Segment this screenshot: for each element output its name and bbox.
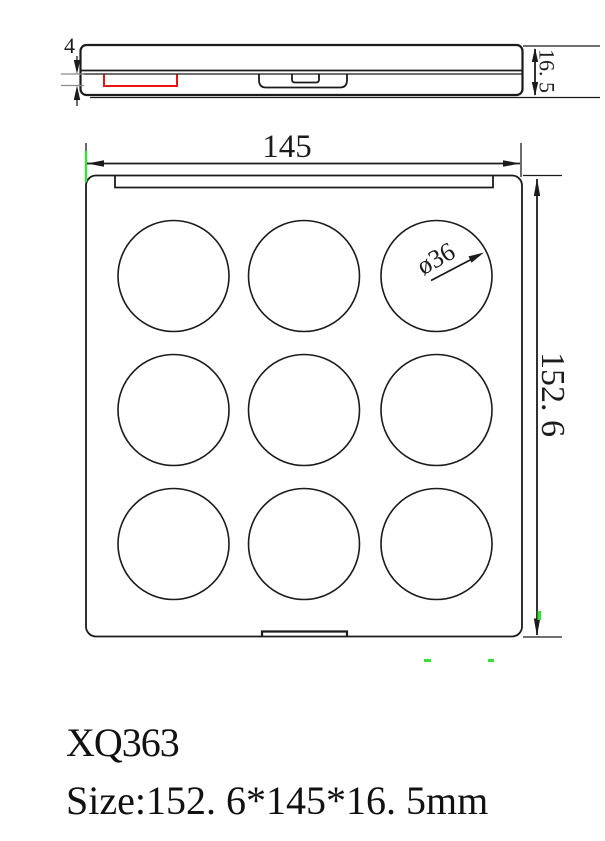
- bottom-latch-notch: [262, 632, 347, 637]
- top-view: 145 152. 6 ø36: [86, 129, 571, 662]
- hinge-strip: [115, 176, 493, 188]
- well-circle: [249, 489, 360, 600]
- arrow-up-right-icon: [469, 253, 485, 263]
- dim-text-pan-depth: 4: [64, 33, 75, 58]
- green-speck: [424, 659, 431, 662]
- palette-drawing-svg: 16. 5 4: [0, 0, 605, 841]
- latch-outline: [259, 74, 347, 88]
- well-circle: [249, 355, 360, 466]
- dim-thickness: 16. 5: [532, 48, 560, 96]
- dim-text-width: 145: [262, 129, 312, 165]
- well-circle: [118, 221, 229, 332]
- product-code-text: XQ363: [66, 720, 179, 765]
- size-spec-text: Size:152. 6*145*16. 5mm: [66, 778, 488, 823]
- pan-recess-highlight: [104, 75, 177, 87]
- well-circle: [118, 355, 229, 466]
- well-circle: [249, 221, 360, 332]
- dim-text-thickness: 16. 5: [535, 49, 560, 93]
- arrow-down-icon: [534, 619, 540, 637]
- dim-overall-width: 145: [86, 129, 521, 182]
- arrow-up-icon: [74, 86, 80, 101]
- dim-text-height: 152. 6: [534, 352, 571, 437]
- side-view: 16. 5 4: [61, 33, 600, 106]
- well-circle: [381, 355, 492, 466]
- palette-body-outline: [86, 176, 522, 637]
- well-circle: [381, 221, 492, 332]
- arrow-down-icon: [74, 60, 80, 74]
- arrow-up-icon: [534, 179, 540, 197]
- dim-text-well-diameter: ø36: [412, 236, 460, 280]
- latch-notch: [292, 74, 319, 83]
- arrow-left-icon: [87, 160, 104, 167]
- well-circle: [381, 489, 492, 600]
- technical-drawing-page: 16. 5 4: [0, 0, 605, 841]
- dim-overall-height: 152. 6: [523, 176, 571, 638]
- dim-well-diameter: ø36: [412, 236, 484, 280]
- arrow-right-icon: [503, 160, 520, 167]
- well-circle: [118, 489, 229, 600]
- green-speck: [488, 659, 494, 662]
- dim-pan-depth: 4: [64, 33, 80, 106]
- title-block: XQ363 Size:152. 6*145*16. 5mm: [66, 720, 488, 823]
- green-speck: [538, 611, 542, 620]
